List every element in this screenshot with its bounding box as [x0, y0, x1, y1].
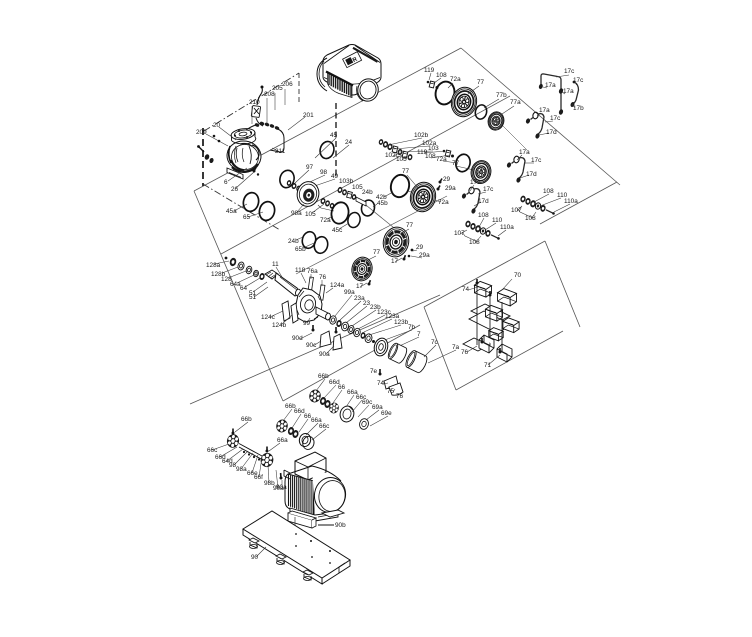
svg-text:66c: 66c [207, 447, 218, 454]
svg-text:105: 105 [305, 211, 316, 218]
svg-text:98a: 98a [291, 210, 302, 217]
svg-text:66f: 66f [254, 474, 263, 481]
svg-text:7c: 7c [431, 339, 439, 346]
svg-text:90: 90 [251, 554, 259, 561]
svg-text:17d: 17d [546, 129, 557, 136]
svg-text:77b: 77b [496, 92, 507, 99]
svg-text:66a: 66a [277, 437, 288, 444]
svg-text:69e: 69e [381, 410, 392, 417]
svg-text:26: 26 [231, 186, 239, 193]
svg-text:110a: 110a [564, 198, 578, 205]
svg-text:201: 201 [303, 112, 314, 119]
svg-text:77: 77 [406, 222, 414, 229]
svg-text:70: 70 [514, 272, 522, 279]
svg-text:90b: 90b [335, 522, 346, 529]
svg-text:66b: 66b [318, 373, 329, 380]
svg-text:72a: 72a [438, 199, 449, 206]
svg-text:110a: 110a [500, 224, 514, 231]
svg-text:77: 77 [452, 160, 460, 167]
svg-text:208: 208 [264, 91, 275, 98]
svg-text:20: 20 [213, 122, 221, 129]
svg-text:29: 29 [416, 244, 424, 251]
svg-text:77: 77 [373, 249, 381, 256]
svg-text:123b: 123b [394, 319, 409, 326]
svg-text:110: 110 [492, 217, 503, 224]
svg-text:45c: 45c [332, 227, 343, 234]
svg-text:76a: 76a [307, 268, 318, 275]
svg-text:74: 74 [462, 286, 470, 293]
svg-text:17c: 17c [483, 186, 494, 193]
svg-text:45a: 45a [226, 208, 237, 215]
svg-text:209: 209 [196, 129, 207, 136]
svg-text:72a: 72a [436, 156, 447, 163]
svg-text:97: 97 [306, 164, 314, 171]
svg-text:206: 206 [282, 81, 293, 88]
svg-text:107: 107 [511, 207, 522, 214]
svg-text:29: 29 [443, 176, 451, 183]
svg-text:118: 118 [295, 267, 306, 274]
svg-text:124a: 124a [330, 282, 345, 289]
svg-text:17c: 17c [564, 68, 575, 75]
svg-text:108: 108 [478, 212, 489, 219]
svg-text:108: 108 [525, 215, 536, 222]
svg-text:7e: 7e [370, 368, 378, 375]
svg-text:98a: 98a [236, 466, 247, 473]
svg-text:11: 11 [272, 261, 279, 268]
svg-text:74: 74 [377, 380, 385, 387]
svg-text:90a: 90a [319, 351, 330, 358]
svg-text:17a: 17a [470, 179, 481, 186]
svg-text:42b: 42b [376, 194, 387, 201]
svg-text:17: 17 [391, 258, 399, 265]
svg-text:29a: 29a [445, 185, 456, 192]
svg-text:66b: 66b [241, 416, 252, 423]
svg-text:76: 76 [396, 393, 404, 400]
svg-text:77: 77 [477, 79, 485, 86]
svg-text:108: 108 [425, 153, 436, 160]
svg-text:45: 45 [330, 132, 338, 139]
svg-text:6: 6 [224, 179, 228, 186]
svg-text:17b: 17b [573, 105, 584, 112]
svg-text:77: 77 [402, 168, 410, 175]
svg-text:17d: 17d [478, 198, 489, 205]
svg-text:51: 51 [249, 294, 257, 301]
svg-text:7: 7 [417, 331, 421, 338]
svg-text:99: 99 [303, 320, 311, 327]
svg-text:90c: 90c [306, 342, 317, 349]
svg-text:45b: 45b [377, 200, 388, 207]
svg-text:211: 211 [275, 148, 286, 155]
svg-text:90a: 90a [276, 484, 287, 491]
svg-text:24b: 24b [288, 238, 299, 245]
svg-text:17c: 17c [573, 77, 584, 84]
svg-text:76: 76 [461, 349, 469, 356]
svg-text:108: 108 [469, 239, 480, 246]
svg-text:17: 17 [356, 283, 364, 290]
svg-text:66c: 66c [319, 423, 330, 430]
svg-text:65: 65 [243, 214, 251, 221]
svg-text:24b: 24b [362, 189, 373, 196]
svg-text:210: 210 [249, 99, 260, 106]
svg-text:17a: 17a [519, 149, 530, 156]
svg-text:77a: 77a [510, 99, 521, 106]
svg-text:98: 98 [320, 169, 328, 176]
svg-text:119: 119 [424, 67, 435, 74]
svg-text:76: 76 [319, 274, 327, 281]
svg-text:17d: 17d [526, 171, 537, 178]
svg-text:124c: 124c [261, 314, 276, 321]
svg-text:72a: 72a [450, 76, 461, 83]
svg-text:108: 108 [436, 72, 447, 79]
svg-text:124b: 124b [272, 322, 287, 329]
